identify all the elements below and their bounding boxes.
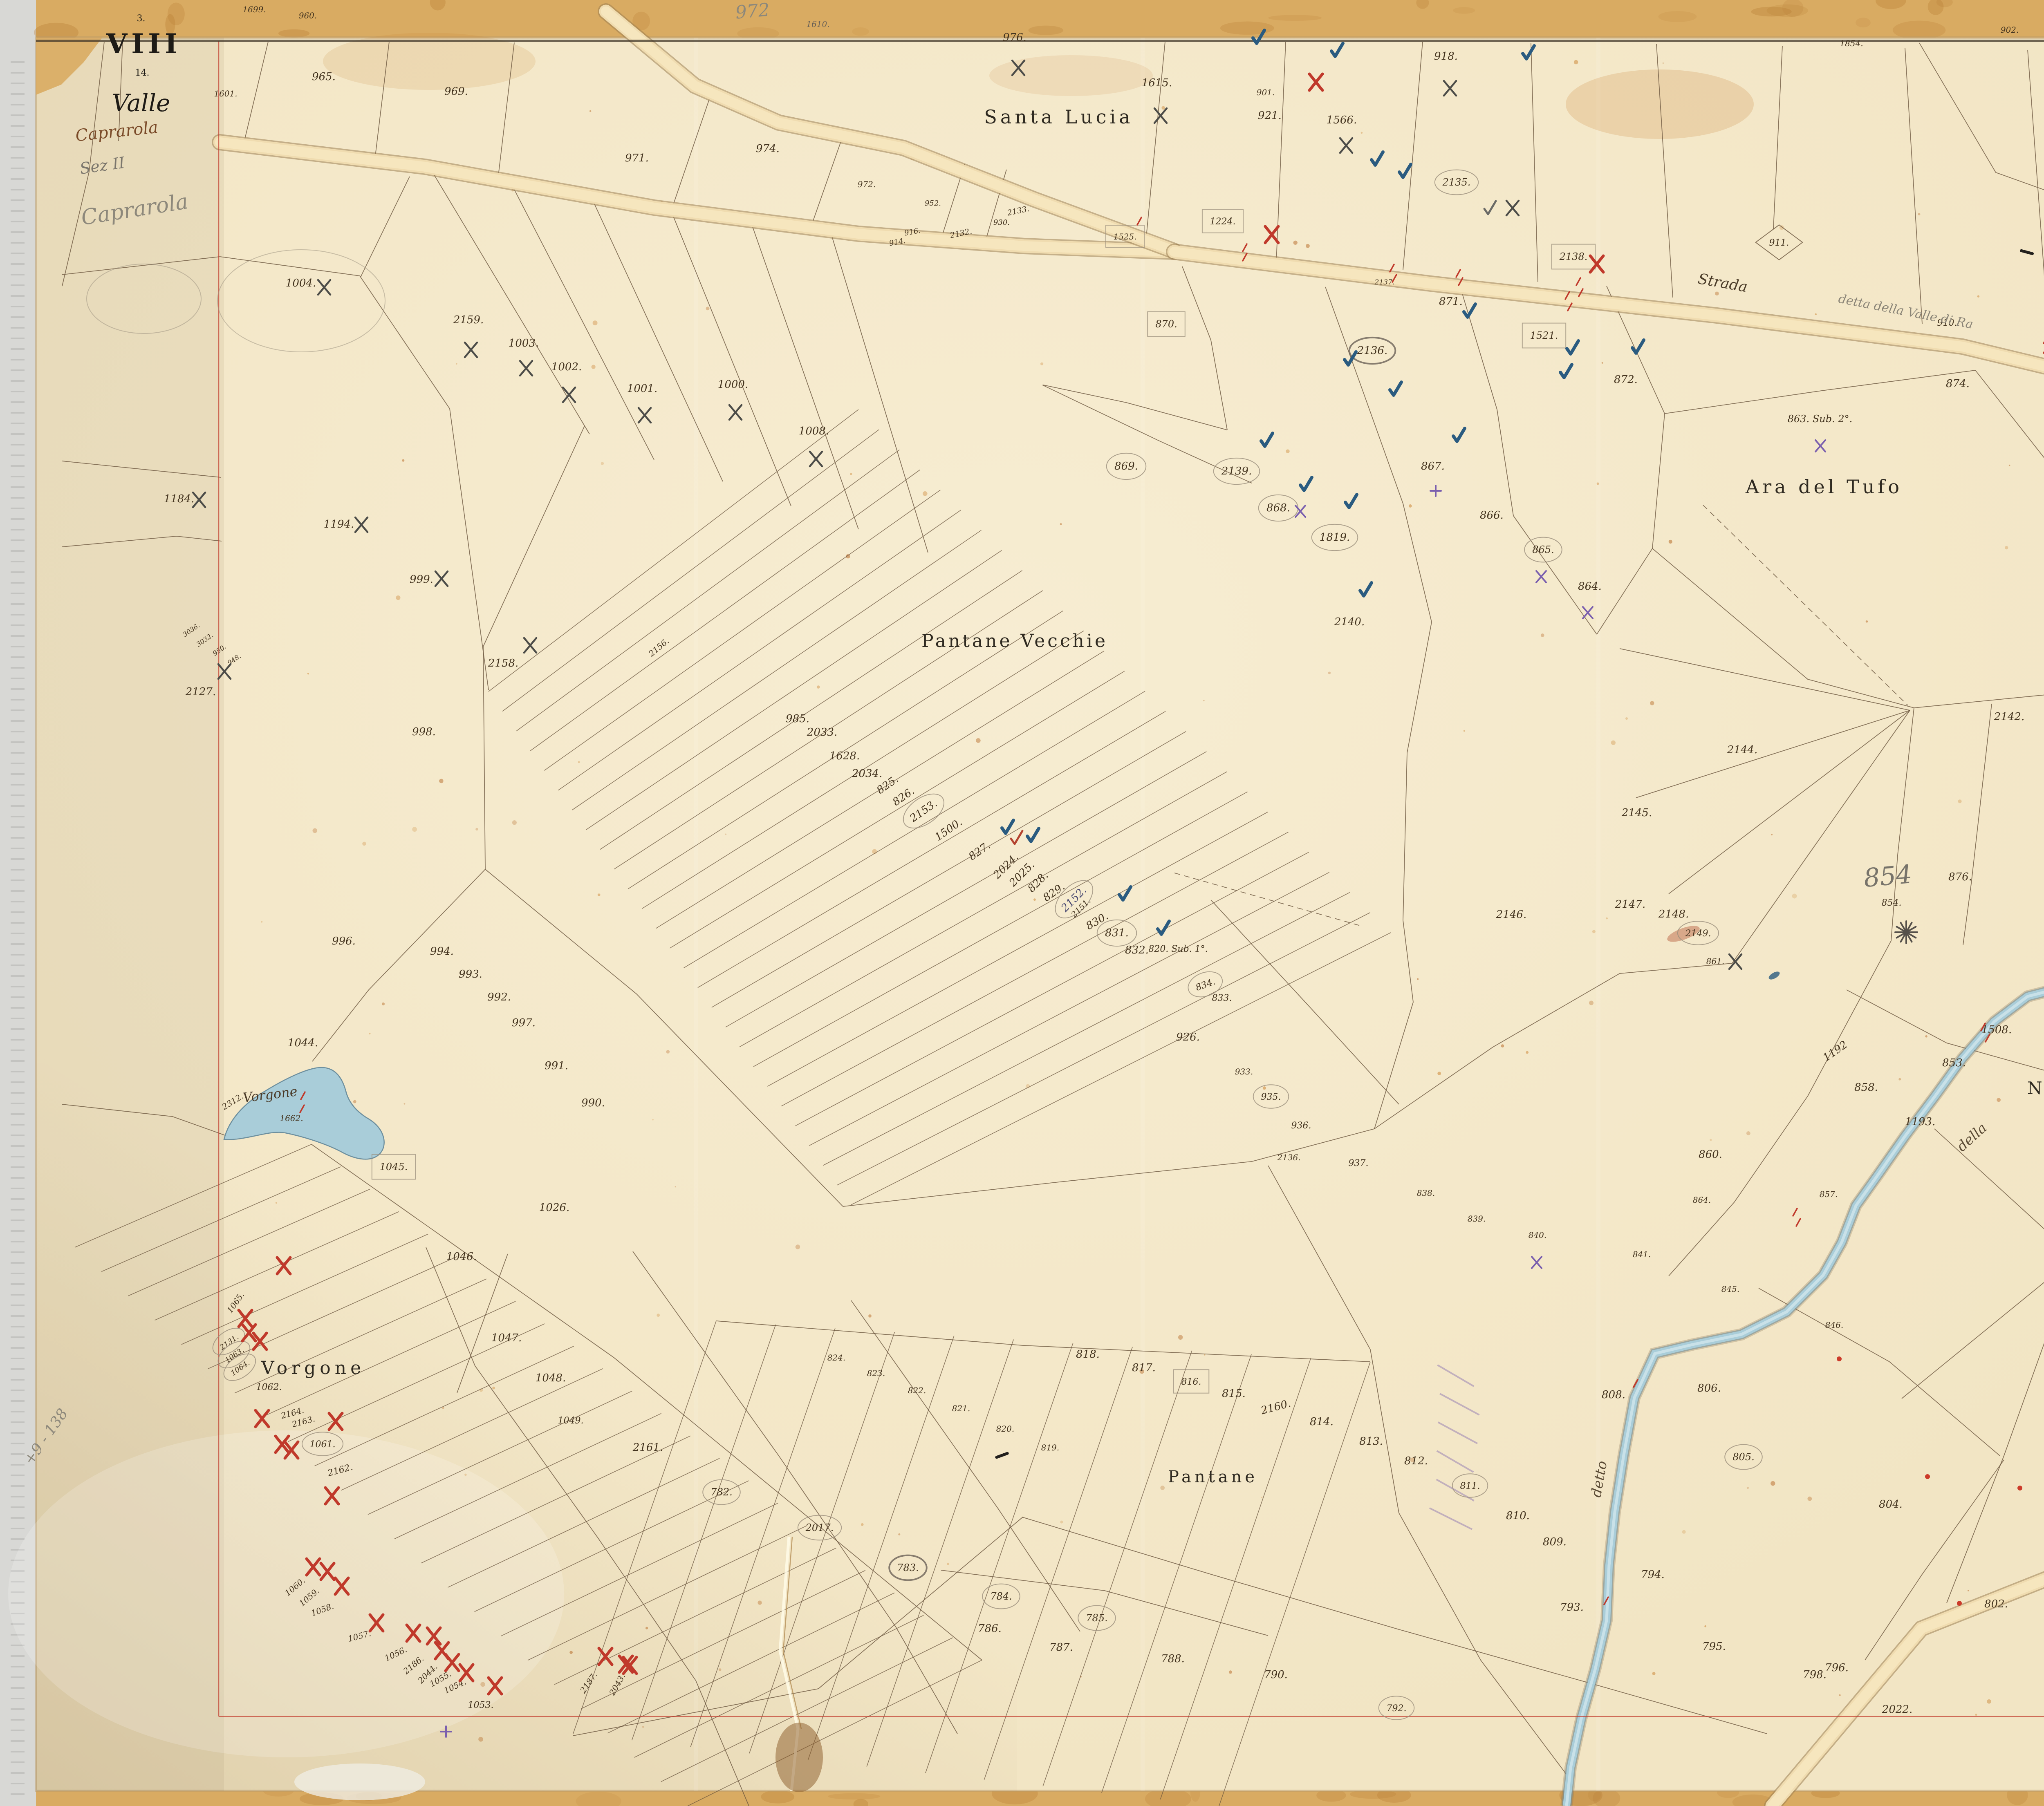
foxing-speck <box>402 459 404 462</box>
sleeve-rib <box>11 327 25 329</box>
parcel-number: 864. <box>1693 1195 1711 1205</box>
parcel-label: 993. <box>459 968 482 980</box>
foxing-speck <box>976 738 981 743</box>
sleeve-rib <box>11 911 25 913</box>
parcel-label: 841. <box>1633 1249 1651 1259</box>
parcel-label: 991. <box>545 1060 568 1072</box>
title-block-text: 14. <box>135 68 150 78</box>
parcel-label: 840. <box>1529 1230 1547 1240</box>
sleeve-rib <box>11 1251 25 1253</box>
parcel-label: 838. <box>1417 1188 1435 1198</box>
parcel-label: 863. Sub. 2°. <box>1788 413 1852 425</box>
foxing-speck <box>589 110 591 112</box>
parcel-number: 1003. <box>509 337 539 349</box>
sleeve-rib <box>11 1007 25 1009</box>
parcel-number: 824. <box>827 1353 846 1363</box>
sleeve-rib <box>11 1421 25 1423</box>
parcel-label: 2147. <box>1615 898 1645 911</box>
parcel-label: 998. <box>412 726 436 738</box>
parcel-number: 1001. <box>627 383 657 395</box>
parcel-number: 786. <box>978 1622 1002 1635</box>
parcel-label: 2144. <box>1727 744 1757 756</box>
foxing-speck <box>1361 132 1363 134</box>
parcel-number: 1062. <box>256 1382 282 1392</box>
foxing-speck <box>1747 1487 1749 1489</box>
parcel-label: 2022. <box>1882 1703 1912 1716</box>
sleeve-rib <box>11 263 25 265</box>
foxing-speck <box>478 1737 483 1742</box>
parcel-number: 813. <box>1359 1435 1383 1448</box>
parcel-number: 2148. <box>1658 908 1689 920</box>
foxing-speck <box>1771 1481 1775 1486</box>
parcel-number: 858. <box>1854 1081 1878 1094</box>
parcel-number: 816. <box>1181 1377 1201 1387</box>
parcel-label: 2159. <box>453 314 484 326</box>
sleeve-rib <box>11 168 25 169</box>
parcel-label: 822. <box>908 1385 926 1395</box>
parcel-number: 805. <box>1732 1451 1754 1463</box>
parcel-number: 2146. <box>1496 909 1526 921</box>
parcel-label: 815. <box>1222 1388 1246 1400</box>
parcel-number: 804. <box>1879 1498 1903 1511</box>
sleeve-rib <box>11 1475 25 1476</box>
parcel-number: 854 <box>1862 859 1913 893</box>
sleeve-rib <box>11 1220 25 1221</box>
parcel-label: 864. <box>1578 580 1602 593</box>
parcel-number: 1525. <box>1113 232 1136 242</box>
sleeve-rib <box>11 284 25 286</box>
parcel-number: 935. <box>1261 1092 1281 1102</box>
sleeve-rib <box>11 1156 25 1157</box>
place-name: Pantane <box>1168 1468 1258 1486</box>
place-name: Ara del Tufo <box>1745 476 1903 498</box>
parcel-label: 933. <box>1235 1067 1253 1076</box>
sleeve-rib <box>11 1336 25 1338</box>
foxing-speck <box>1437 1072 1441 1075</box>
parcel-number: 2158. <box>488 657 518 669</box>
parcel-number: 853. <box>1942 1057 1966 1069</box>
parcel-label: 960. <box>299 11 317 20</box>
sleeve-rib <box>11 157 25 159</box>
parcel-label: 985. <box>786 713 809 725</box>
parcel-label: 832. <box>1125 944 1149 956</box>
foxing-speck <box>1977 295 1979 297</box>
backing-mottle <box>828 1793 880 1799</box>
foxing-speck <box>1606 918 1608 920</box>
foxing-speck <box>947 1563 949 1565</box>
parcel-label: 2146. <box>1496 909 1526 921</box>
parcel-number: 872. <box>1614 374 1638 386</box>
foxing-speck <box>1033 898 1036 901</box>
sleeve-rib <box>11 614 25 615</box>
parcel-number: 969. <box>444 85 468 98</box>
parcel-label: 788. <box>1161 1653 1185 1665</box>
parcel-number: 820. <box>996 1424 1015 1434</box>
parcel-number: 790. <box>1264 1669 1288 1681</box>
foxing-speck <box>261 921 262 922</box>
parcel-label: 866. <box>1480 509 1504 521</box>
parcel-number: 936. <box>1291 1121 1311 1131</box>
parcel-number: 974. <box>756 143 780 155</box>
foxing-speck <box>796 1244 800 1249</box>
foxing-speck <box>923 491 928 496</box>
parcel-number: 1000. <box>718 378 748 391</box>
place-name: Pantane Vecchie <box>921 631 1108 651</box>
foxing-speck <box>1501 1044 1504 1047</box>
foxing-speck <box>1958 799 1962 803</box>
parcel-label: 994. <box>430 945 454 958</box>
sleeve-rib <box>11 1485 25 1487</box>
sleeve-rib <box>11 741 25 743</box>
foxing-speck <box>1229 1670 1232 1674</box>
foxing-speck <box>1574 60 1578 65</box>
sleeve-rib <box>11 1698 25 1699</box>
sleeve-rib <box>11 1103 25 1104</box>
parcel-number: 869. <box>1114 460 1138 472</box>
backing-mottle <box>1268 15 1322 21</box>
foxing-speck <box>1161 106 1165 110</box>
sleeve-rib <box>11 901 25 902</box>
foxing-speck <box>642 1726 644 1728</box>
title-block-text: Valle <box>112 89 170 117</box>
foxing-speck <box>1898 1078 1901 1081</box>
parcel-number: 2159. <box>453 314 484 326</box>
sleeve-rib <box>11 295 25 297</box>
parcel-number: 1699. <box>242 4 266 14</box>
parcel-label: 902. <box>2001 25 2019 35</box>
sleeve-rib <box>11 571 25 573</box>
foxing-speck <box>850 473 852 475</box>
foxing-speck <box>1409 504 1412 508</box>
parcel-number: 793. <box>1560 1601 1584 1614</box>
parcel-label: 1566. <box>1327 114 1357 126</box>
parcel-label: 1699. <box>242 4 266 14</box>
cadastral-map-sheet: 1699.960.965.969.971.1601.974.972.952.91… <box>0 0 2044 1806</box>
sleeve-rib <box>11 752 25 754</box>
foxing-speck <box>412 827 417 832</box>
parcel-number: 1566. <box>1327 114 1357 126</box>
foxing-speck <box>1669 540 1672 544</box>
sleeve-rib <box>11 561 25 562</box>
sleeve-rib <box>11 1018 25 1019</box>
parcel-label: 971. <box>625 152 649 164</box>
sleeve-rib <box>11 1113 25 1115</box>
sleeve-rib <box>11 61 25 63</box>
sleeve-rib <box>11 146 25 148</box>
parcel-label: 871. <box>1439 295 1463 308</box>
parcel-label: 1854. <box>1840 38 1863 48</box>
parcel-label: 976. <box>1003 31 1026 44</box>
sleeve-rib <box>11 1060 25 1062</box>
backing-mottle <box>1658 11 1697 22</box>
parcel-label: 1002. <box>551 361 582 373</box>
parcel-label: 802. <box>1984 1598 2008 1610</box>
sleeve-rib <box>11 1198 25 1200</box>
parcel-label: 1004. <box>286 277 316 289</box>
sleeve-rib <box>11 369 25 371</box>
parcel-label: 854. <box>1882 898 1902 908</box>
sleeve-rib <box>11 869 25 871</box>
sleeve-rib <box>11 316 25 318</box>
parcel-label: 857. <box>1820 1189 1838 1199</box>
foxing-speck <box>652 1119 654 1121</box>
foxing-speck <box>1526 1051 1529 1054</box>
sleeve-rib <box>11 539 25 541</box>
sleeve-rib <box>11 933 25 934</box>
parcel-number: 874. <box>1946 378 1970 390</box>
parcel-number: 798. <box>1803 1669 1827 1681</box>
foxing-speck <box>1771 834 1773 835</box>
parcel-label: 874. <box>1946 378 1970 390</box>
foxing-speck <box>492 1387 495 1390</box>
parcel-label: 952. <box>925 199 941 208</box>
foxing-speck <box>1263 1086 1266 1090</box>
parcel-label: 1062. <box>256 1382 282 1392</box>
parcel-number: 870. <box>1155 318 1177 330</box>
sleeve-rib <box>11 508 25 509</box>
parcel-label: 1003. <box>509 337 539 349</box>
sleeve-rib <box>11 943 25 945</box>
parcel-number: 833. <box>1212 993 1232 1003</box>
parcel-label: 794. <box>1641 1569 1665 1581</box>
red-dot-mark <box>1925 1474 1930 1479</box>
parcel-number: 952. <box>925 199 941 208</box>
parcel-number: 902. <box>2001 25 2019 35</box>
sleeve-rib <box>11 890 25 892</box>
sleeve-rib <box>11 1135 25 1136</box>
red-dot-mark <box>2017 1486 2022 1490</box>
foxing-speck <box>1589 1000 1594 1005</box>
foxing-speck <box>1975 1714 1977 1716</box>
parcel-number: 866. <box>1480 509 1504 521</box>
parcel-number: 821. <box>952 1403 970 1413</box>
parcel-number: 1046. <box>446 1251 477 1263</box>
parcel-number: 921. <box>1258 110 1282 122</box>
foxing-speck <box>1611 741 1616 745</box>
parcel-number: 857. <box>1820 1189 1838 1199</box>
sleeve-rib <box>11 826 25 828</box>
sleeve-rib <box>11 1039 25 1041</box>
parcel-number: 918. <box>1434 50 1458 63</box>
sleeve-rib <box>11 1528 25 1529</box>
sleeve-rib <box>11 1294 25 1296</box>
foxing-speck <box>725 833 726 835</box>
parcel-label: 817. <box>1132 1362 1156 1374</box>
parcel-number: 2022. <box>1882 1703 1912 1716</box>
foxing-speck <box>396 595 400 600</box>
parcel-number: 871. <box>1439 295 1463 308</box>
parcel-label: 1048. <box>536 1372 566 1384</box>
sleeve-rib <box>11 986 25 987</box>
parcel-number: 794. <box>1641 1569 1665 1581</box>
foxing-speck <box>1286 449 1289 453</box>
sleeve-rib <box>11 1050 25 1051</box>
sleeve-rib <box>11 709 25 711</box>
foxing-speck <box>758 1600 762 1605</box>
parcel-number: 845. <box>1721 1284 1740 1294</box>
place-name: Vorgone <box>261 1358 365 1379</box>
parcel-number: 841. <box>1633 1249 1651 1259</box>
sleeve-rib <box>11 1496 25 1497</box>
foxing-speck <box>1997 1098 2001 1102</box>
parcel-number: 876. <box>1948 871 1972 883</box>
parcel-number: 1004. <box>286 277 316 289</box>
parcel-label: 997. <box>512 1017 536 1029</box>
parcel-label: 1047. <box>491 1332 522 1344</box>
parcel-label: 1053. <box>468 1700 494 1710</box>
parcel-number: 1521. <box>1530 330 1558 341</box>
parcel-number: 926. <box>1176 1031 1200 1043</box>
sleeve-rib <box>11 593 25 594</box>
parcel-number: 960. <box>299 11 317 20</box>
sleeve-rib <box>11 1443 25 1444</box>
parcel-label: 823. <box>867 1368 885 1378</box>
place-name: Santa Lucia <box>984 106 1133 128</box>
sleeve-rib <box>11 965 25 966</box>
parcel-number: 2147. <box>1615 898 1645 911</box>
handwritten-label: 1610. <box>806 19 829 29</box>
parcel-number: 1049. <box>558 1416 584 1426</box>
sleeve-rib <box>11 763 25 764</box>
fold-crease <box>1141 38 1145 1791</box>
parcel-label: 996. <box>332 935 356 947</box>
parcel-label: 819. <box>1041 1443 1060 1452</box>
sleeve-rib <box>11 1464 25 1466</box>
parcel-number: 1047. <box>491 1332 522 1344</box>
sleeve-rib <box>11 1411 25 1412</box>
foxing-speck <box>1918 213 1921 215</box>
parcel-label: 867. <box>1421 460 1445 472</box>
parcel-number: 864. <box>1578 580 1602 593</box>
sleeve-rib <box>11 1326 25 1327</box>
parcel-number: 2140. <box>1334 616 1365 628</box>
foxing-speck <box>456 363 457 365</box>
parcel-label: 1662. <box>280 1113 303 1123</box>
parcel-number: 840. <box>1529 1230 1547 1240</box>
sleeve-rib <box>11 423 25 424</box>
foxing-speck <box>1060 523 1062 525</box>
parcel-label: 804. <box>1879 1498 1903 1511</box>
parcel-label: 858. <box>1854 1081 1878 1094</box>
damage-gap <box>294 1763 425 1800</box>
sleeve-rib <box>11 72 25 74</box>
parcel-number: 822. <box>908 1385 926 1395</box>
parcel-label: 974. <box>756 143 780 155</box>
foxing-speck <box>598 893 601 896</box>
foxing-speck <box>601 462 604 465</box>
parcel-number: 1508. <box>1981 1024 2012 1036</box>
foxing-speck <box>464 1474 467 1476</box>
parcel-number: 817. <box>1132 1362 1156 1374</box>
parcel-number: 1008. <box>799 425 829 437</box>
sleeve-rib <box>11 253 25 254</box>
parcel-number: 863. Sub. 2°. <box>1788 413 1852 425</box>
parcel-label: 2140. <box>1334 616 1365 628</box>
foxing-speck <box>1815 313 1817 315</box>
sleeve-rib <box>11 635 25 637</box>
damage-blotch <box>775 1723 823 1792</box>
parcel-number: 1002. <box>551 361 582 373</box>
sleeve-rib <box>11 221 25 222</box>
backing-mottle <box>1029 26 1063 35</box>
handwritten-label: 972 <box>735 0 771 23</box>
parcel-number: 2144. <box>1727 744 1757 756</box>
parcel-number: 930. <box>993 218 1010 227</box>
parcel-label: 790. <box>1264 1669 1288 1681</box>
parcel-label: 1026. <box>539 1202 569 1214</box>
parcel-label: 921. <box>1258 110 1282 122</box>
sleeve-rib <box>11 274 25 275</box>
sleeve-rib <box>11 359 25 360</box>
foxing-speck <box>1650 701 1654 705</box>
parcel-label: 2034. <box>852 768 882 780</box>
foxing-speck <box>1160 1486 1165 1490</box>
foxing-speck <box>1541 633 1544 637</box>
parcel-label: 936. <box>1291 1121 1311 1131</box>
foxing-speck <box>706 307 710 310</box>
parcel-number: 2136. <box>1357 345 1387 357</box>
parcel-number: 985. <box>786 713 809 725</box>
parcel-number: 815. <box>1222 1388 1246 1400</box>
foxing-speck <box>861 1523 864 1526</box>
foxing-speck <box>1807 1497 1812 1501</box>
backing-mottle <box>1856 18 1871 27</box>
parcel-label: 860. <box>1699 1148 1722 1161</box>
sleeve-rib <box>11 1390 25 1391</box>
sleeve-rib <box>11 1708 25 1710</box>
sleeve-rib <box>11 1793 25 1795</box>
parcel-label: 1194. <box>324 518 354 530</box>
sleeve-rib <box>11 880 25 881</box>
parcel-number: 2127. <box>185 686 216 698</box>
sleeve-rib <box>11 1092 25 1094</box>
foxing-speck <box>569 1651 573 1654</box>
sleeve-rib <box>11 582 25 584</box>
foxing-speck <box>1417 978 1419 980</box>
parcel-label: 861. <box>1706 956 1725 966</box>
foxing-speck <box>1715 292 1719 295</box>
foxing-speck <box>593 320 598 325</box>
sleeve-rib <box>11 699 25 700</box>
parcel-number: 839. <box>1468 1214 1486 1224</box>
parcel-label: 2136. <box>1277 1153 1300 1162</box>
parcel-number: 819. <box>1041 1443 1060 1452</box>
sleeve-rib <box>11 93 25 95</box>
sleeve-rib <box>11 773 25 775</box>
sleeve-rib <box>11 125 25 127</box>
parcel-number: 784. <box>990 1591 1012 1602</box>
sleeve-rib <box>11 1241 25 1242</box>
sleeve-rib <box>11 1028 25 1030</box>
foxing-speck <box>1710 1139 1712 1141</box>
foxing-speck <box>657 1314 660 1317</box>
parcel-label: 833. <box>1212 993 1232 1003</box>
sleeve-rib <box>11 1166 25 1168</box>
parcel-number: 993. <box>459 968 482 980</box>
parcel-number: 976. <box>1003 31 1026 44</box>
foxing-speck <box>1866 620 1868 622</box>
foxing-speck <box>1968 1590 1969 1591</box>
sleeve-rib <box>11 805 25 807</box>
parcel-number: 2145. <box>1621 807 1652 819</box>
parcel-number: 1194. <box>324 518 354 530</box>
sleeve-rib <box>11 1666 25 1667</box>
parcel-number: 1026. <box>539 1202 569 1214</box>
sleeve-rib <box>11 954 25 956</box>
sleeve-rib <box>11 975 25 977</box>
sleeve-rib <box>11 848 25 849</box>
parcel-number: 810. <box>1506 1510 1530 1522</box>
